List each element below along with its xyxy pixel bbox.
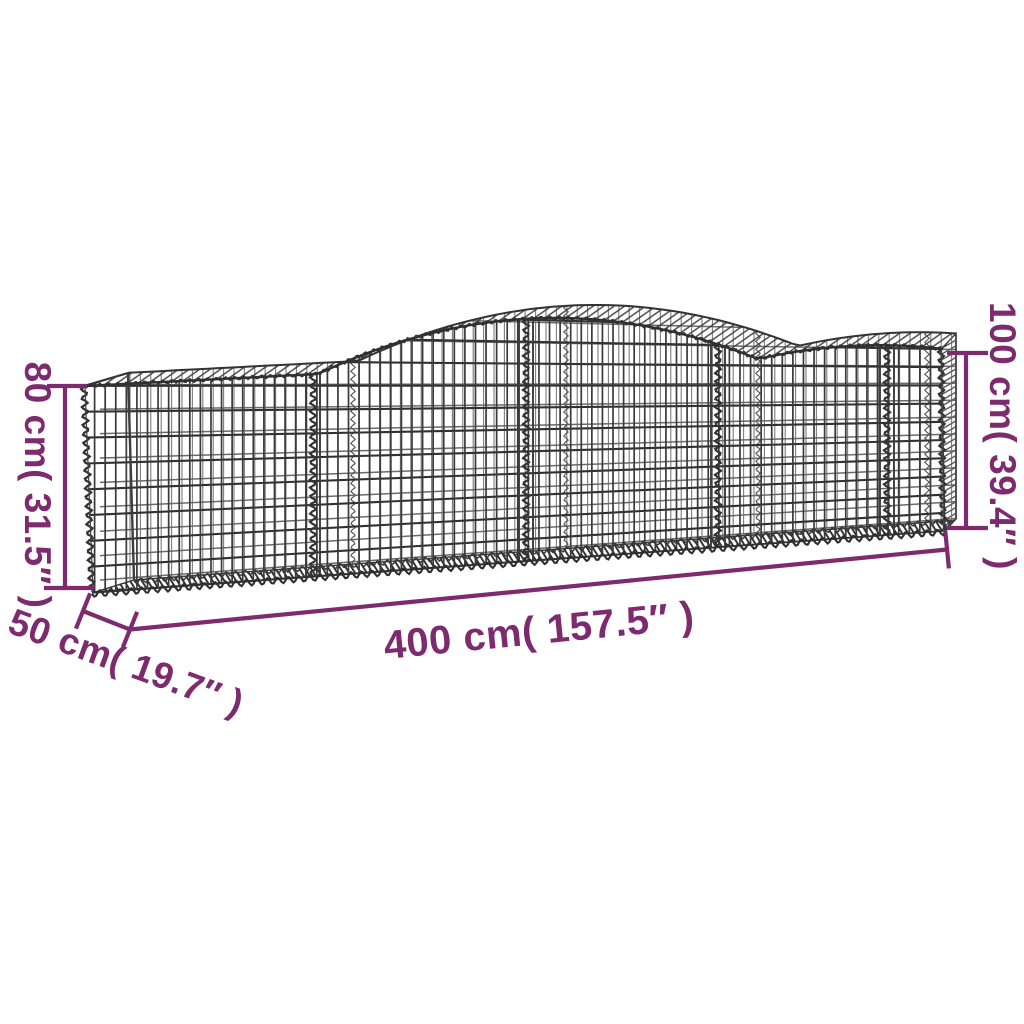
gabion-dimension-diagram: 80 cm( 31.5″ ) 100 cm( 39.4″ ) 400 cm( 1… — [0, 0, 1024, 1024]
height-100-dimension: 100 cm( 39.4″ ) — [947, 302, 1023, 570]
gabion-basket-mesh — [81, 282, 956, 596]
length-400-label: 400 cm( 157.5″ ) — [382, 594, 697, 668]
depth-50-dimension: 50 cm( 19.7″ ) — [3, 593, 249, 723]
length-400-tick-right — [945, 531, 949, 569]
height-100-label: 100 cm( 39.4″ ) — [982, 302, 1023, 570]
height-80-label: 80 cm( 31.5″ ) — [17, 362, 58, 609]
product-dimension-image: 80 cm( 31.5″ ) 100 cm( 39.4″ ) 400 cm( 1… — [0, 0, 1024, 1024]
